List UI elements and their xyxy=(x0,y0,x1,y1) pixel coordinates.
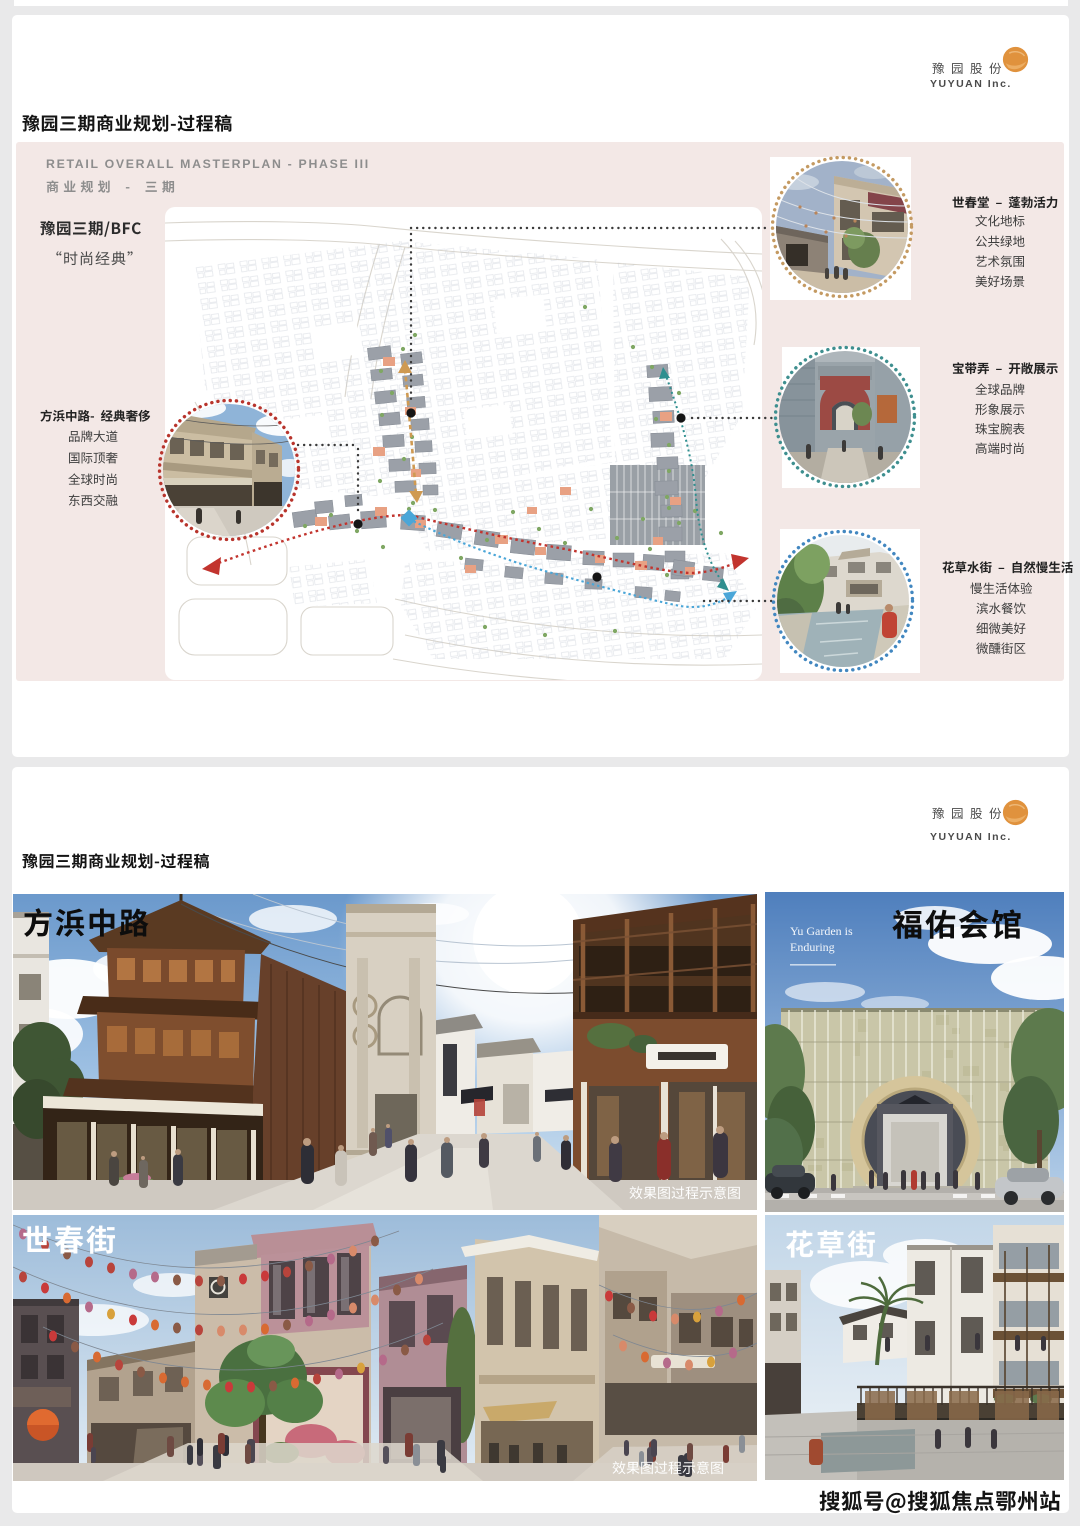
svg-text:Yu Garden is: Yu Garden is xyxy=(790,924,853,938)
svg-text:Enduring: Enduring xyxy=(790,940,835,954)
